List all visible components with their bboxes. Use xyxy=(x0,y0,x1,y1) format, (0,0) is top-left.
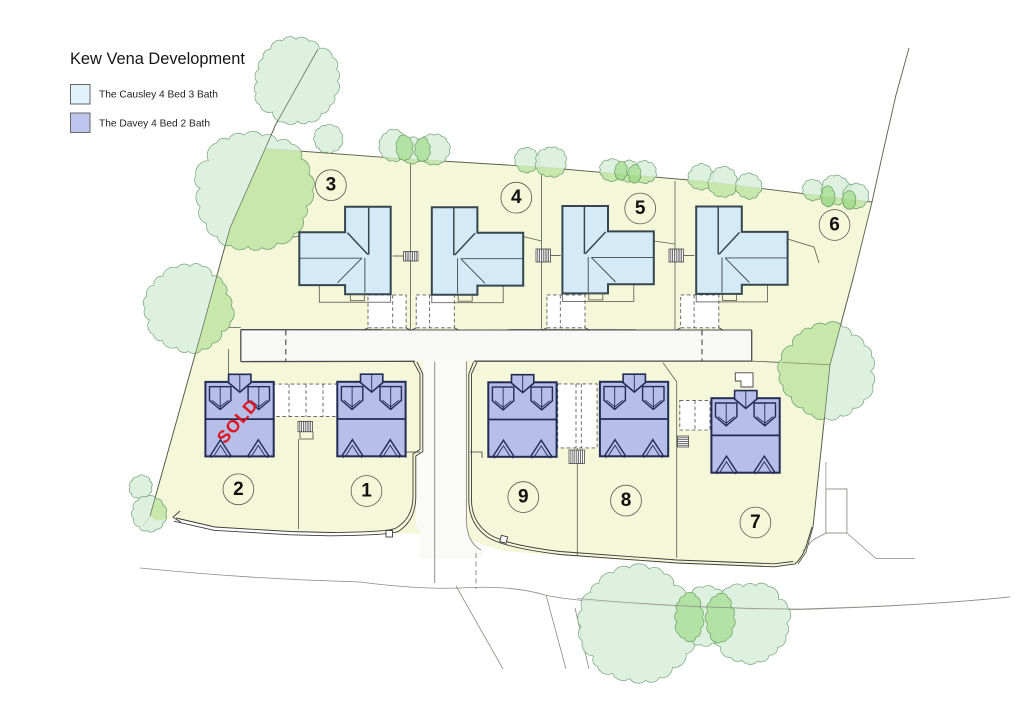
svg-text:5: 5 xyxy=(635,198,646,219)
svg-text:8: 8 xyxy=(621,490,632,511)
svg-text:4: 4 xyxy=(511,187,522,208)
svg-text:Kew Vena Development: Kew Vena Development xyxy=(70,50,245,68)
svg-text:6: 6 xyxy=(829,215,840,236)
svg-text:The Davey 4 Bed 2 Bath: The Davey 4 Bed 2 Bath xyxy=(99,119,210,130)
svg-text:2: 2 xyxy=(233,479,244,500)
svg-text:7: 7 xyxy=(750,512,761,533)
svg-text:3: 3 xyxy=(326,175,337,196)
svg-text:1: 1 xyxy=(361,481,372,502)
svg-text:9: 9 xyxy=(518,487,529,508)
svg-text:The Causley 4 Bed 3 Bath: The Causley 4 Bed 3 Bath xyxy=(99,90,218,101)
